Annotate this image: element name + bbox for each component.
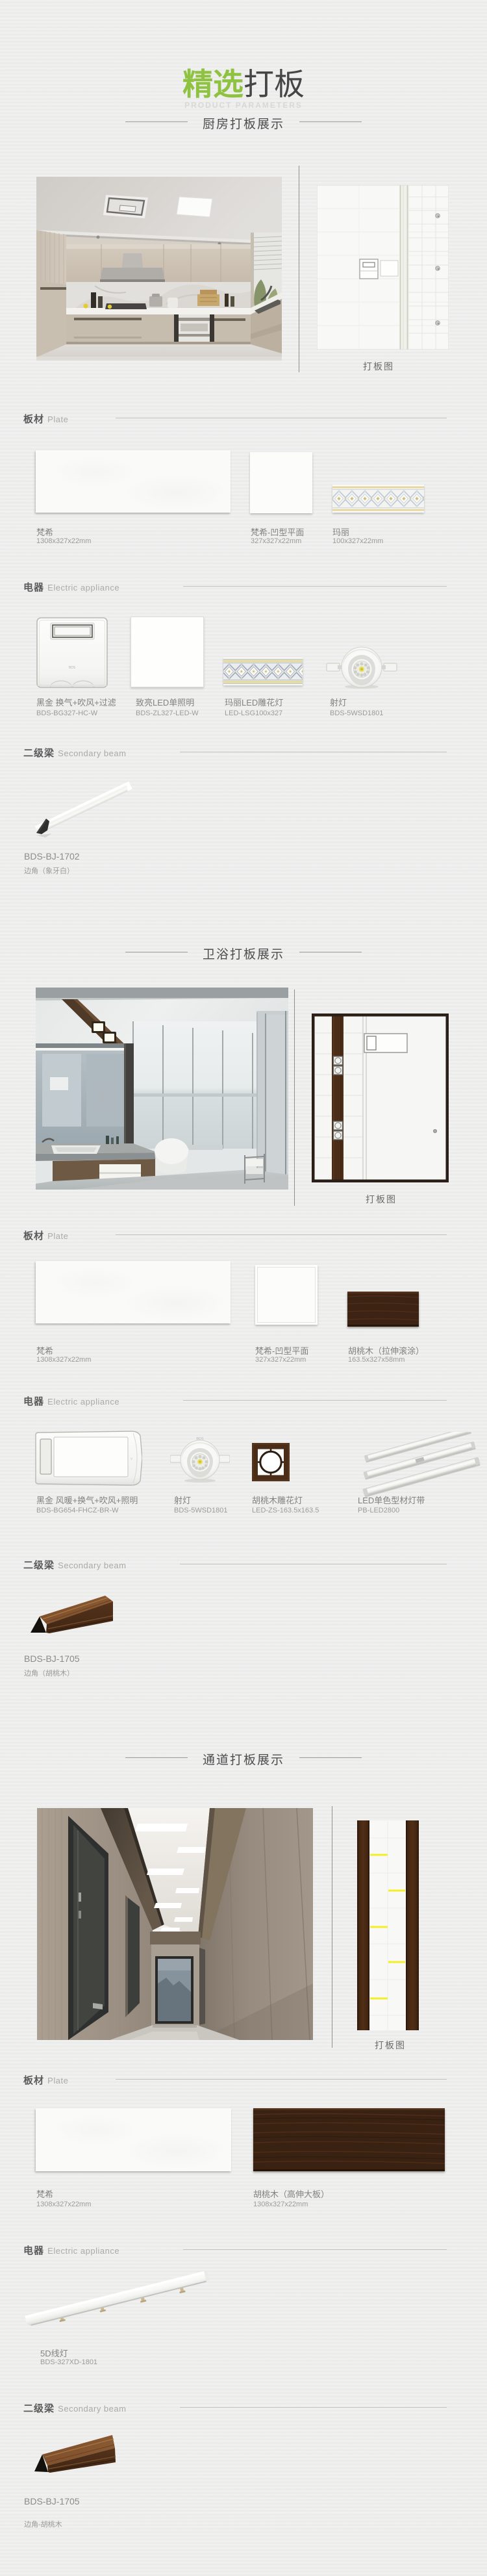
svg-text:v: v [131, 1457, 132, 1461]
svg-text:BDS: BDS [69, 666, 76, 670]
